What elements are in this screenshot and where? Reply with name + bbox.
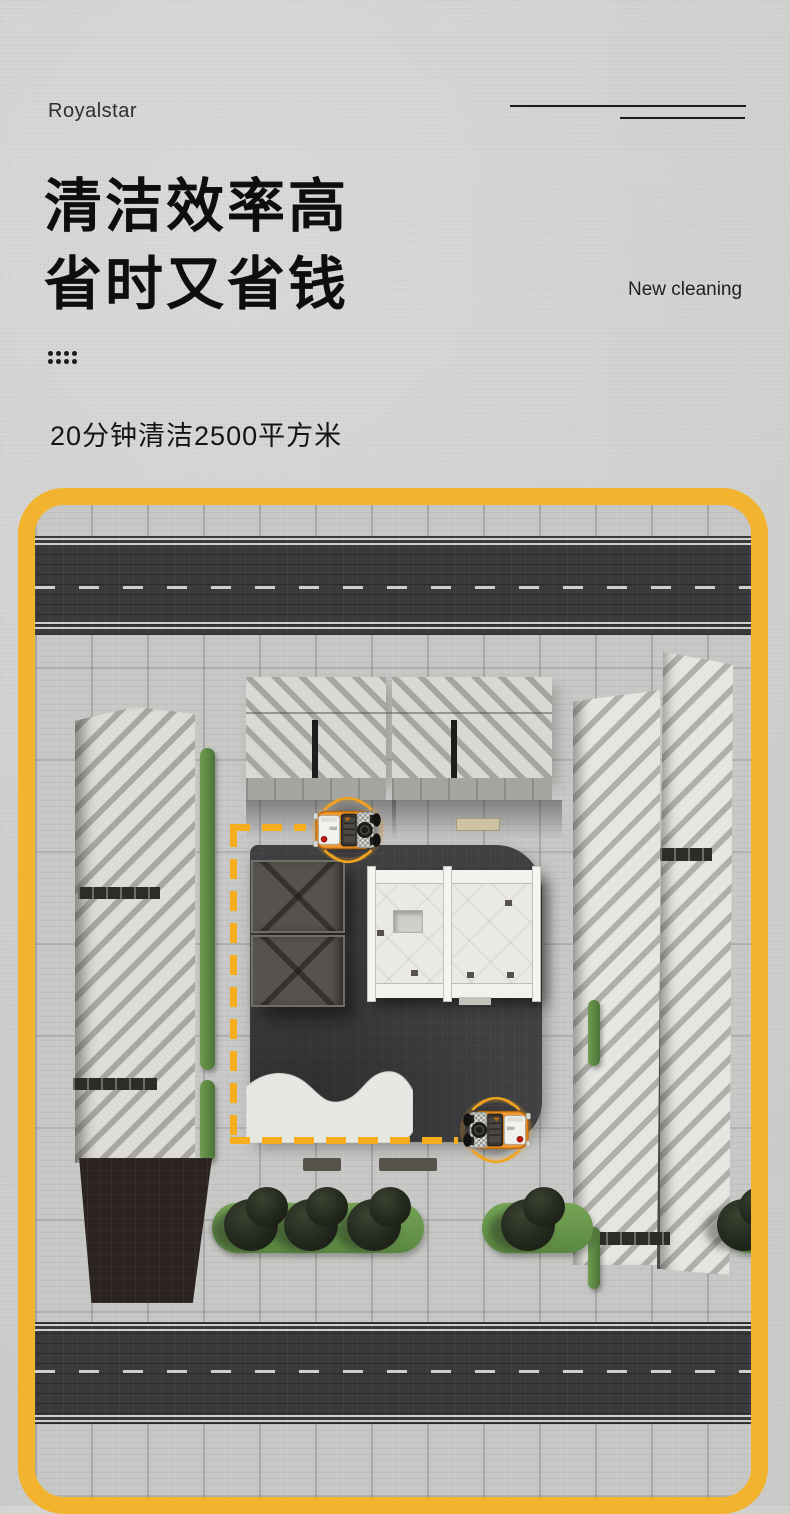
route-dash-vertical [230,827,237,1140]
deco-line-bottom [620,117,745,119]
pavement-mark-2 [379,1158,437,1171]
tree-cluster [497,1187,567,1257]
kiosk-box-2 [251,935,345,1007]
roof-tier-edge [246,712,552,714]
bench [456,818,500,831]
hedge-right-upper [588,1000,600,1066]
hero-title: 清洁效率高 省时又省钱 [44,168,349,324]
hedge-left-lower [200,1080,215,1162]
roof-gap-left [312,720,318,783]
tree-cluster [343,1187,413,1257]
road-bottom [35,1322,751,1424]
pavement-mark-1 [303,1158,341,1171]
dots-ornament [48,351,77,364]
brand-logo: Royalstar [48,100,137,123]
hero-title-line2: 省时又省钱 [44,246,349,324]
tree-cluster [713,1187,768,1257]
roof-gap-right [451,720,457,783]
left-tower-window-band-2 [73,1078,157,1090]
building-dark-bottom-left [75,1158,212,1303]
kiosk-box-1 [251,860,345,933]
hedge-left-upper [200,748,215,1070]
hero-title-line1: 清洁效率高 [44,168,349,246]
aerial-scene [35,505,751,1497]
hero-subtitle: 20分钟清洁2500平方米 [50,414,342,453]
building-center-right-roof [392,677,552,778]
route-dash-top [230,824,306,831]
plaza-white-walkway [246,1065,413,1143]
white-pavilion [367,870,541,998]
robot-floor-scrubber-bottom [454,1091,538,1169]
road-top [35,536,751,635]
deco-line-top [510,105,746,107]
route-dash-bottom [230,1137,458,1144]
right-tower-window-band-2 [592,1232,670,1245]
robot-floor-scrubber-top [306,791,390,869]
building-left-tower [75,707,195,1163]
building-right-tower-outer [657,652,733,1275]
building-right-tower-inner [573,690,660,1265]
illustration-frame [18,488,768,1514]
left-tower-window-band-1 [78,887,160,899]
tagline-en: New cleaning [628,279,742,301]
right-tower-window-band-1 [660,848,712,861]
building-center-right-wall [392,778,552,800]
